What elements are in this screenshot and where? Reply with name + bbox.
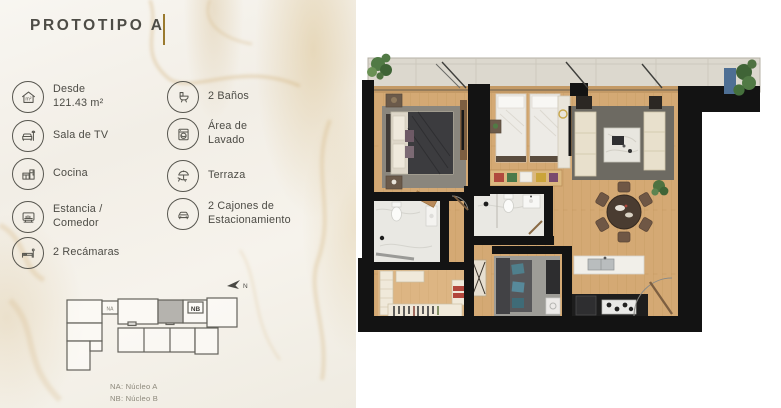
tv-cabinet	[546, 260, 560, 294]
sofa-back	[496, 258, 510, 314]
hall-console	[472, 260, 486, 296]
keyplan-nb-label: NB	[191, 306, 201, 313]
feature-area: m² Desde121.43 m²	[12, 81, 103, 113]
feature-dining-label: Estancia /Comedor	[53, 203, 102, 231]
terrace-threshold	[370, 86, 680, 93]
page-title: PROTOTIPO A	[30, 17, 165, 35]
keyplan-bottom-row	[118, 328, 218, 354]
feature-parking-label: 2 Cajones deEstacionamiento	[208, 200, 291, 228]
toilet	[504, 200, 514, 213]
kitchen-icon	[12, 158, 44, 190]
keyplan-legend-na: NA: Núcleo A	[110, 381, 158, 393]
feature-bedrooms: 2 Recámaras	[12, 237, 119, 269]
shower-head	[380, 236, 384, 240]
tv-sideboard	[558, 96, 570, 168]
parking-icon	[167, 198, 199, 230]
feature-dining: Estancia /Comedor	[12, 201, 102, 233]
second-bedroom	[490, 94, 572, 186]
building-key-plan: N NA NB	[62, 276, 248, 376]
feature-area-label: Desde121.43 m²	[53, 83, 103, 111]
feature-laundry: Área deLavado	[167, 118, 247, 150]
bed-headboard	[386, 114, 391, 172]
feature-bathrooms-label: 2 Baños	[208, 90, 249, 104]
toilet	[392, 207, 402, 221]
keyplan-legend-nb: NB: Núcleo B	[110, 393, 158, 405]
feature-bathrooms: 2 Baños	[167, 81, 249, 113]
main-bathroom	[372, 191, 440, 264]
feature-kitchen-label: Cocina	[53, 167, 88, 181]
north-label: N	[243, 283, 248, 290]
master-bedroom	[382, 94, 467, 189]
area-icon: m²	[12, 81, 44, 113]
keyplan-left-wing	[67, 300, 102, 370]
feature-terrace: Terraza	[167, 160, 245, 192]
keyplan-legend: NA: Núcleo A NB: Núcleo B	[110, 381, 158, 405]
feature-bedrooms-label: 2 Recámaras	[53, 246, 119, 260]
north-arrow-icon	[227, 280, 240, 289]
fridge	[576, 296, 596, 315]
feature-parking: 2 Cajones deEstacionamiento	[167, 198, 291, 230]
tv-screen	[569, 106, 572, 156]
feature-tv-room-label: Sala de TV	[53, 129, 108, 143]
feature-kitchen: Cocina	[12, 158, 88, 190]
svg-text:m²: m²	[25, 96, 31, 102]
sofa	[644, 112, 665, 170]
terrace-icon	[167, 160, 199, 192]
floor-plan-render	[356, 50, 766, 350]
shower-head	[484, 202, 489, 207]
keyplan-na-label: NA	[107, 307, 115, 313]
walk-in-closet	[378, 270, 466, 318]
feature-terrace-label: Terraza	[208, 169, 245, 183]
sofa	[575, 112, 596, 176]
laundry-icon	[167, 118, 199, 150]
tv-room-icon	[12, 120, 44, 152]
bathroom-icon	[167, 81, 199, 113]
prototype-a-brochure-page: { "title": { "text": "PROTOTIPO A" }, "f…	[0, 0, 781, 408]
title-accent-bar	[163, 14, 165, 45]
keyplan-highlighted-unit	[158, 300, 183, 323]
feature-tv-room: Sala de TV	[12, 120, 108, 152]
second-bathroom	[474, 194, 544, 236]
washing-machine	[546, 298, 560, 314]
dining-icon	[12, 201, 44, 233]
feature-laundry-label: Área deLavado	[208, 120, 247, 148]
bedroom-icon	[12, 237, 44, 269]
bedroom-dresser	[490, 170, 562, 186]
tv-den	[494, 256, 560, 316]
dining-table	[607, 195, 641, 229]
